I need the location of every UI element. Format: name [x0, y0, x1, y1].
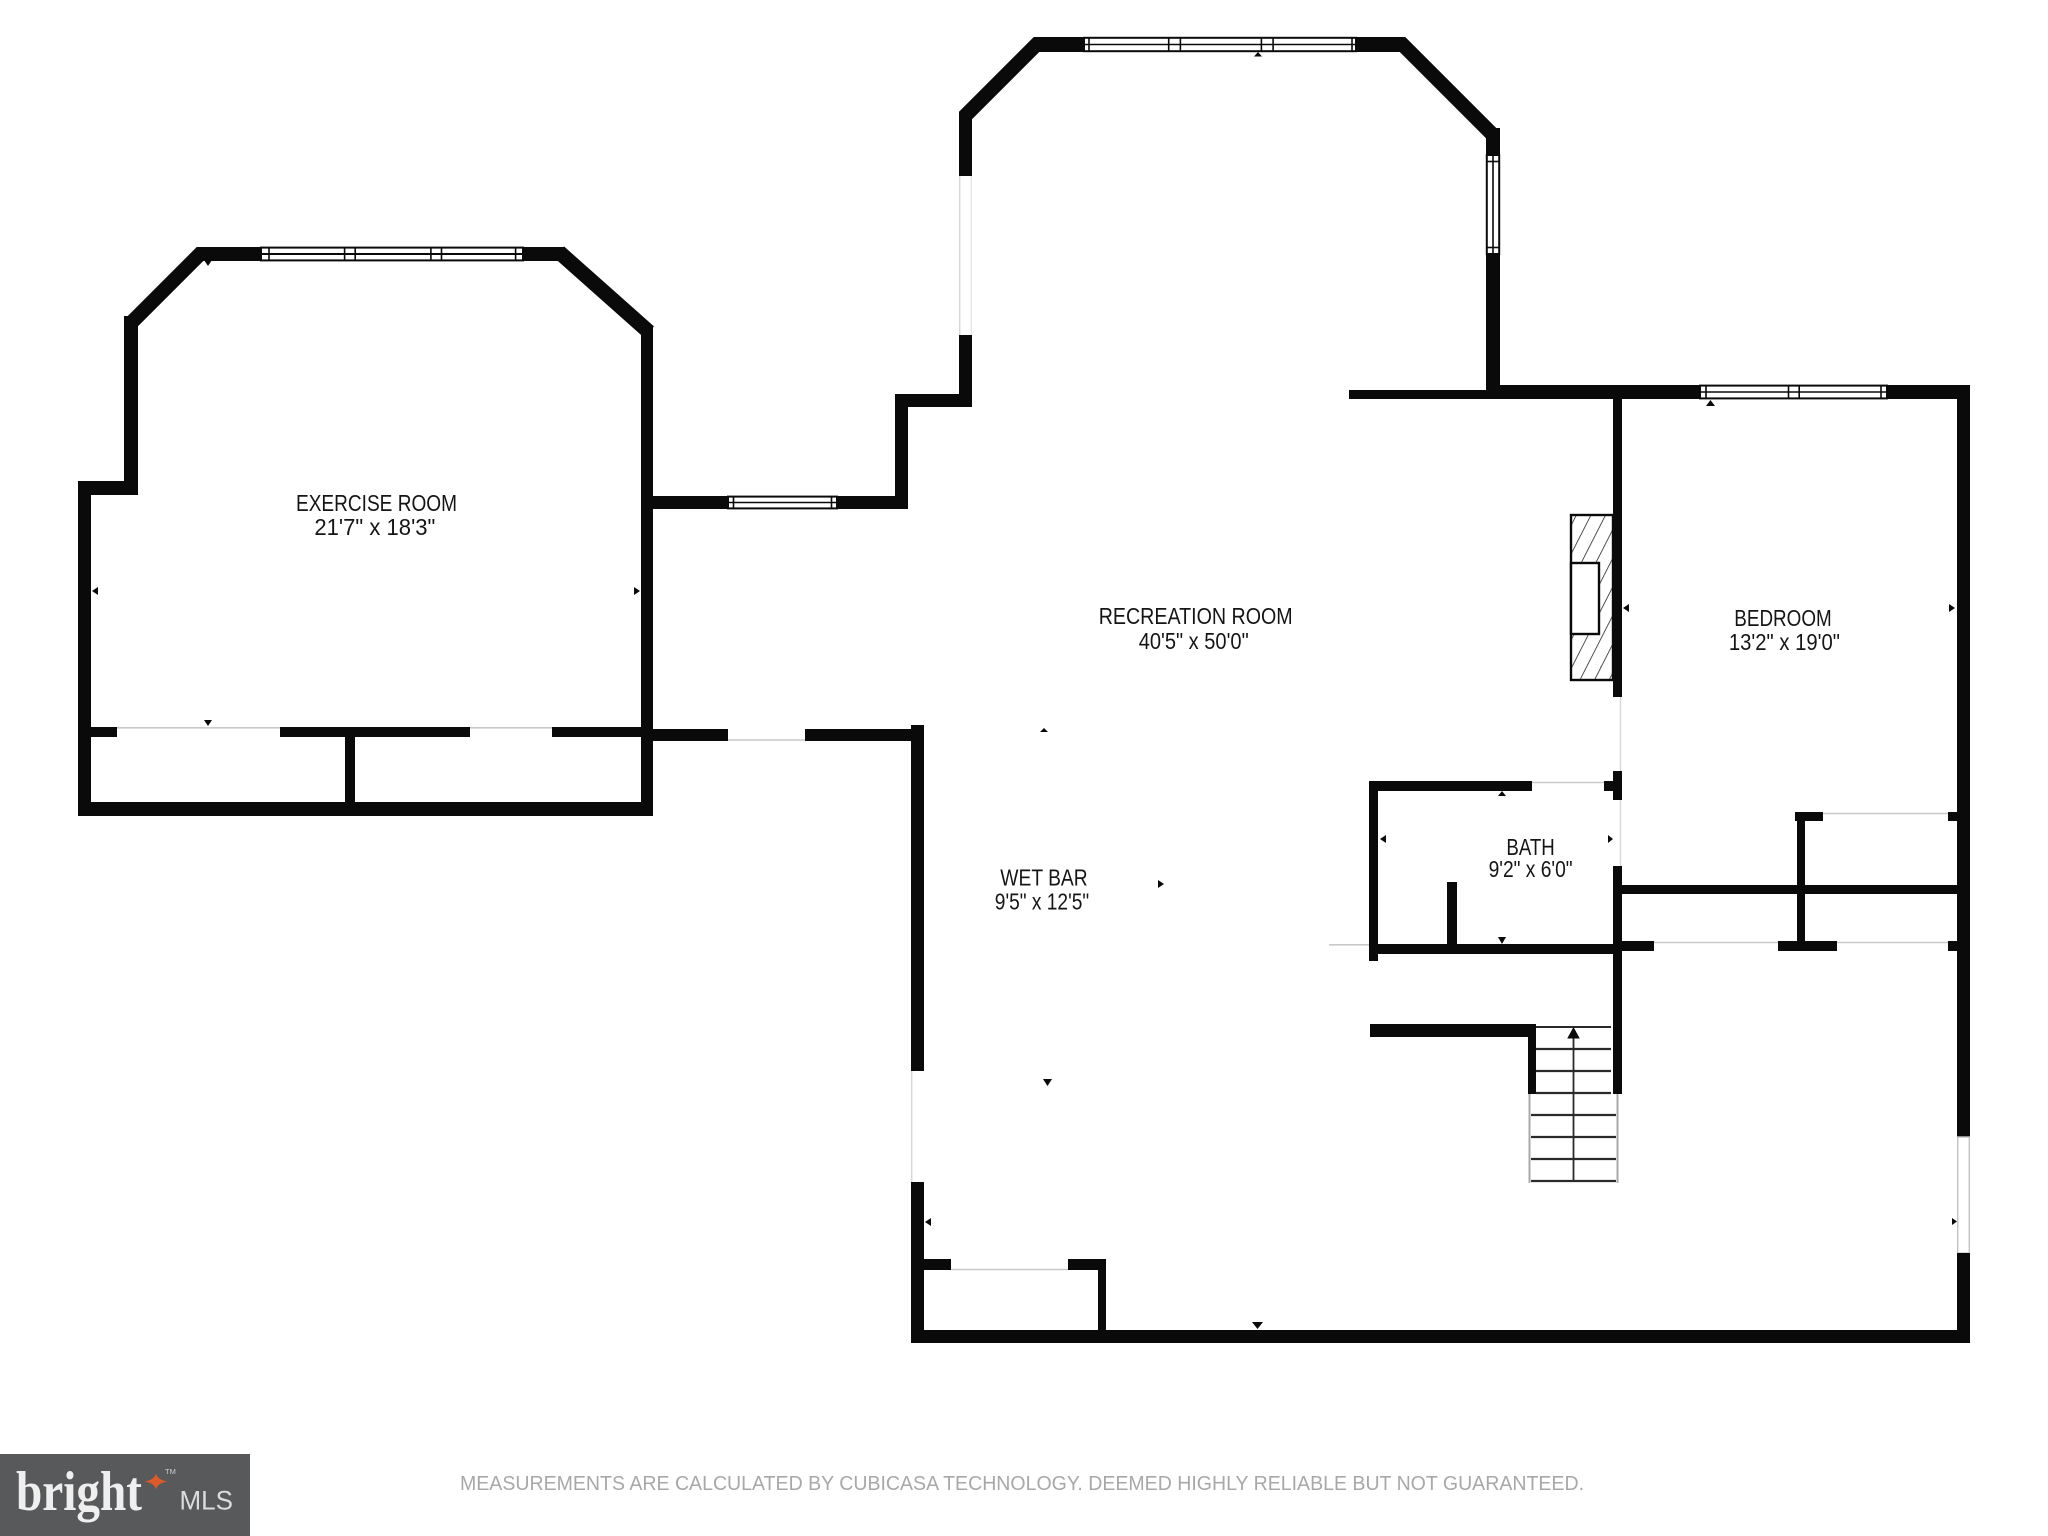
svg-text:21'7" x 18'3": 21'7" x 18'3": [314, 514, 435, 540]
svg-text:9'5" x 12'5": 9'5" x 12'5": [995, 889, 1089, 915]
svg-text:EXERCISE ROOM: EXERCISE ROOM: [296, 490, 457, 516]
svg-text:bright: bright: [16, 1461, 142, 1523]
svg-text:13'2" x 19'0": 13'2" x 19'0": [1729, 629, 1840, 655]
svg-text:TM: TM: [165, 1467, 176, 1476]
svg-text:WET BAR: WET BAR: [1000, 865, 1087, 891]
svg-text:MEASUREMENTS ARE CALCULATED BY: MEASUREMENTS ARE CALCULATED BY CUBICASA …: [460, 1473, 1584, 1495]
svg-text:BEDROOM: BEDROOM: [1734, 605, 1831, 631]
svg-text:MLS: MLS: [180, 1486, 233, 1516]
svg-text:9'2" x 6'0": 9'2" x 6'0": [1489, 856, 1573, 882]
svg-text:RECREATION ROOM: RECREATION ROOM: [1099, 603, 1293, 629]
svg-text:40'5" x 50'0": 40'5" x 50'0": [1139, 628, 1249, 654]
